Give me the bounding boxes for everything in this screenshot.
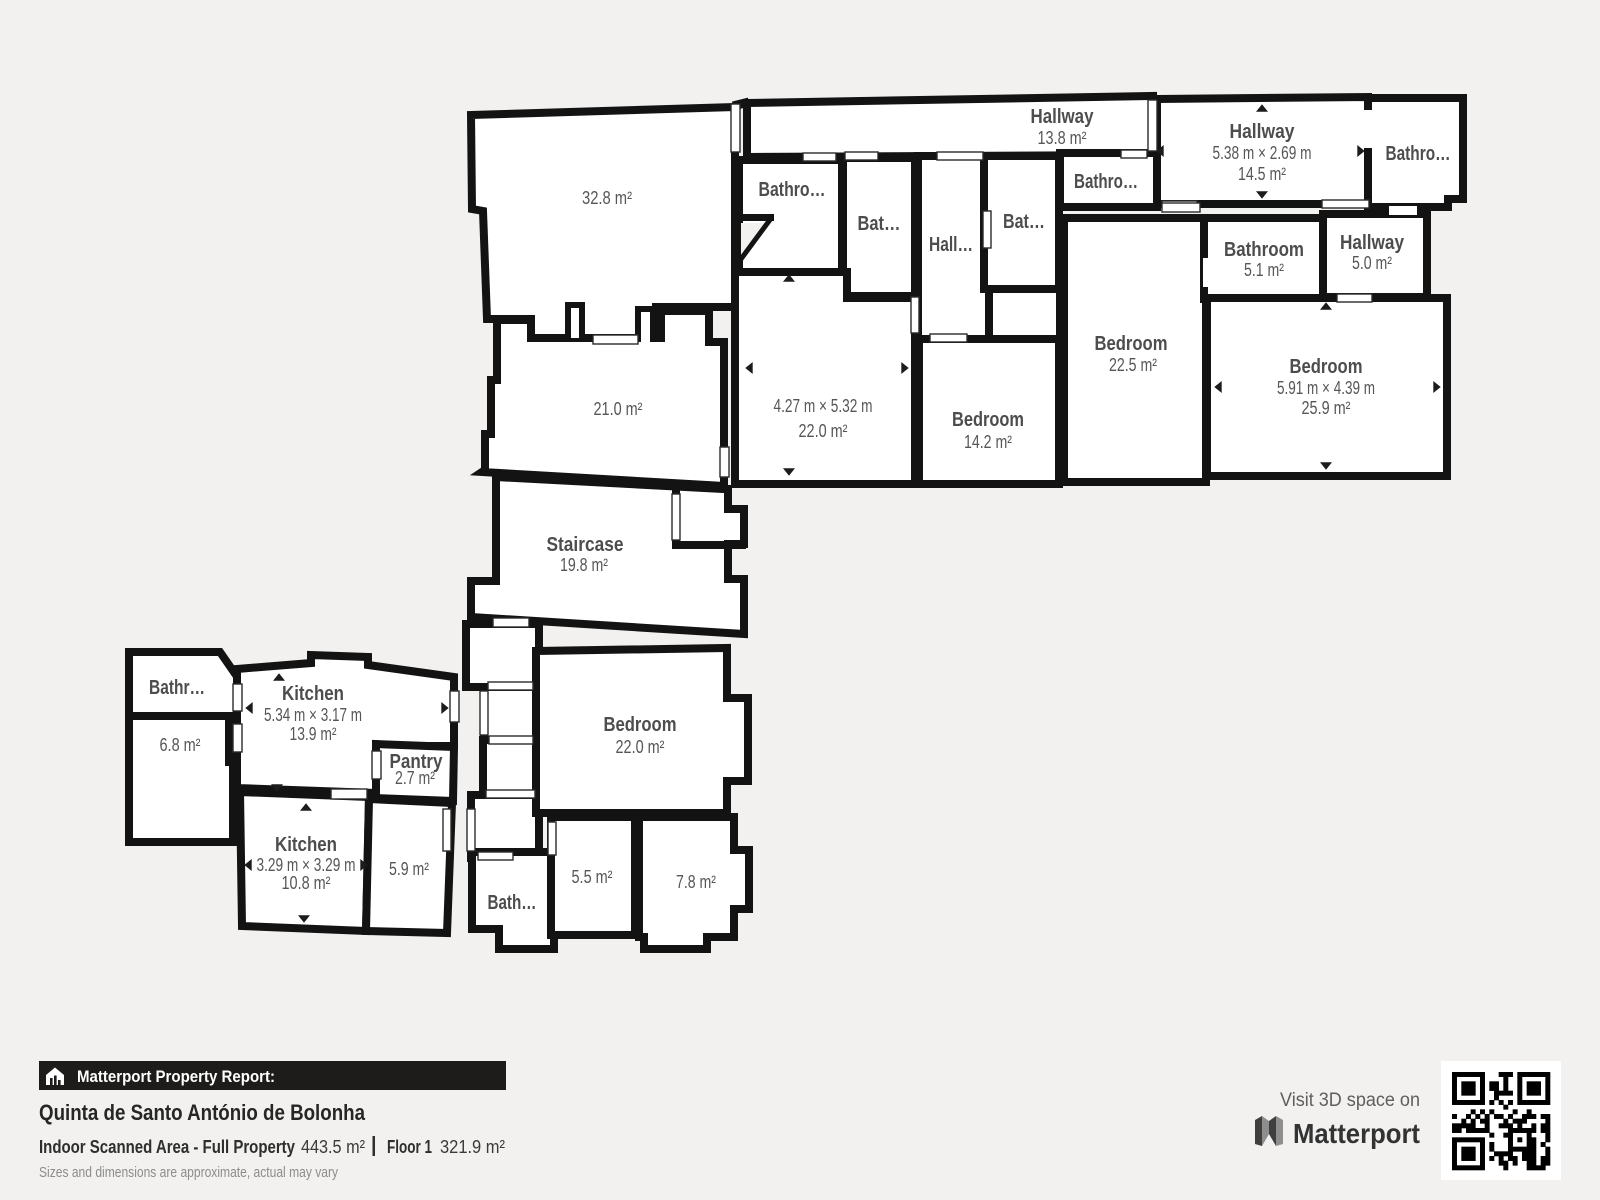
svg-text:Matterport: Matterport (1293, 1118, 1420, 1149)
svg-text:Staircase: Staircase (547, 534, 624, 556)
svg-text:5.0 m²: 5.0 m² (1352, 253, 1392, 273)
svg-text:Bat…: Bat… (1003, 211, 1045, 233)
svg-text:5.38 m × 2.69 m: 5.38 m × 2.69 m (1213, 143, 1312, 163)
svg-text:5.91 m × 4.39 m: 5.91 m × 4.39 m (1277, 378, 1375, 398)
svg-text:32.8 m²: 32.8 m² (582, 188, 632, 208)
svg-text:5.1 m²: 5.1 m² (1244, 260, 1284, 280)
svg-text:22.0 m²: 22.0 m² (799, 421, 848, 441)
svg-text:13.8 m²: 13.8 m² (1038, 128, 1087, 148)
svg-text:6.8 m²: 6.8 m² (160, 735, 201, 755)
svg-text:Bat…: Bat… (858, 213, 901, 235)
svg-text:5.5 m²: 5.5 m² (572, 867, 613, 887)
svg-text:Floor 1: Floor 1 (387, 1136, 432, 1157)
svg-text:25.9 m²: 25.9 m² (1302, 398, 1351, 418)
svg-text:10.8 m²: 10.8 m² (282, 873, 331, 893)
svg-text:5.34 m × 3.17 m: 5.34 m × 3.17 m (264, 705, 362, 725)
svg-text:Bathr…: Bathr… (149, 677, 205, 699)
svg-text:Kitchen: Kitchen (282, 683, 344, 705)
svg-text:Bath…: Bath… (488, 892, 537, 914)
svg-text:Hall…: Hall… (929, 234, 973, 256)
svg-text:19.8 m²: 19.8 m² (560, 555, 608, 575)
svg-text:Hallway: Hallway (1340, 232, 1405, 254)
svg-text:Bedroom: Bedroom (1290, 356, 1363, 378)
svg-text:Matterport Property Report:: Matterport Property Report: (77, 1068, 275, 1086)
svg-text:Bathro…: Bathro… (1074, 171, 1138, 193)
svg-text:14.5 m²: 14.5 m² (1238, 164, 1286, 184)
svg-text:Indoor Scanned Area - Full Pro: Indoor Scanned Area - Full Property (39, 1136, 296, 1157)
svg-text:321.9 m²: 321.9 m² (440, 1136, 505, 1157)
svg-text:13.9 m²: 13.9 m² (290, 724, 337, 744)
svg-text:Bathroom: Bathroom (1224, 239, 1304, 261)
svg-text:Bedroom: Bedroom (1095, 333, 1168, 355)
svg-text:Visit 3D space on: Visit 3D space on (1280, 1090, 1420, 1111)
svg-text:Quinta de Santo António de Bol: Quinta de Santo António de Bolonha (39, 1100, 366, 1125)
svg-text:Bedroom: Bedroom (952, 409, 1024, 431)
svg-text:Bedroom: Bedroom (604, 714, 677, 736)
svg-text:Bathro…: Bathro… (1386, 143, 1451, 165)
svg-text:22.0 m²: 22.0 m² (616, 737, 665, 757)
svg-text:2.7 m²: 2.7 m² (395, 768, 435, 788)
svg-text:Kitchen: Kitchen (275, 834, 337, 856)
svg-text:Bathro…: Bathro… (759, 179, 826, 201)
svg-text:Sizes and dimensions are appro: Sizes and dimensions are approximate, ac… (39, 1164, 338, 1181)
svg-text:22.5 m²: 22.5 m² (1109, 355, 1157, 375)
svg-text:Hallway: Hallway (1031, 106, 1095, 128)
svg-text:443.5 m²: 443.5 m² (301, 1136, 365, 1157)
svg-text:7.8 m²: 7.8 m² (676, 872, 716, 892)
svg-text:3.29 m × 3.29 m: 3.29 m × 3.29 m (257, 855, 356, 875)
svg-text:Hallway: Hallway (1230, 121, 1296, 143)
svg-text:4.27 m × 5.32 m: 4.27 m × 5.32 m (774, 396, 873, 416)
svg-text:14.2 m²: 14.2 m² (964, 432, 1012, 452)
svg-text:5.9 m²: 5.9 m² (389, 859, 429, 879)
svg-text:21.0 m²: 21.0 m² (594, 399, 643, 419)
